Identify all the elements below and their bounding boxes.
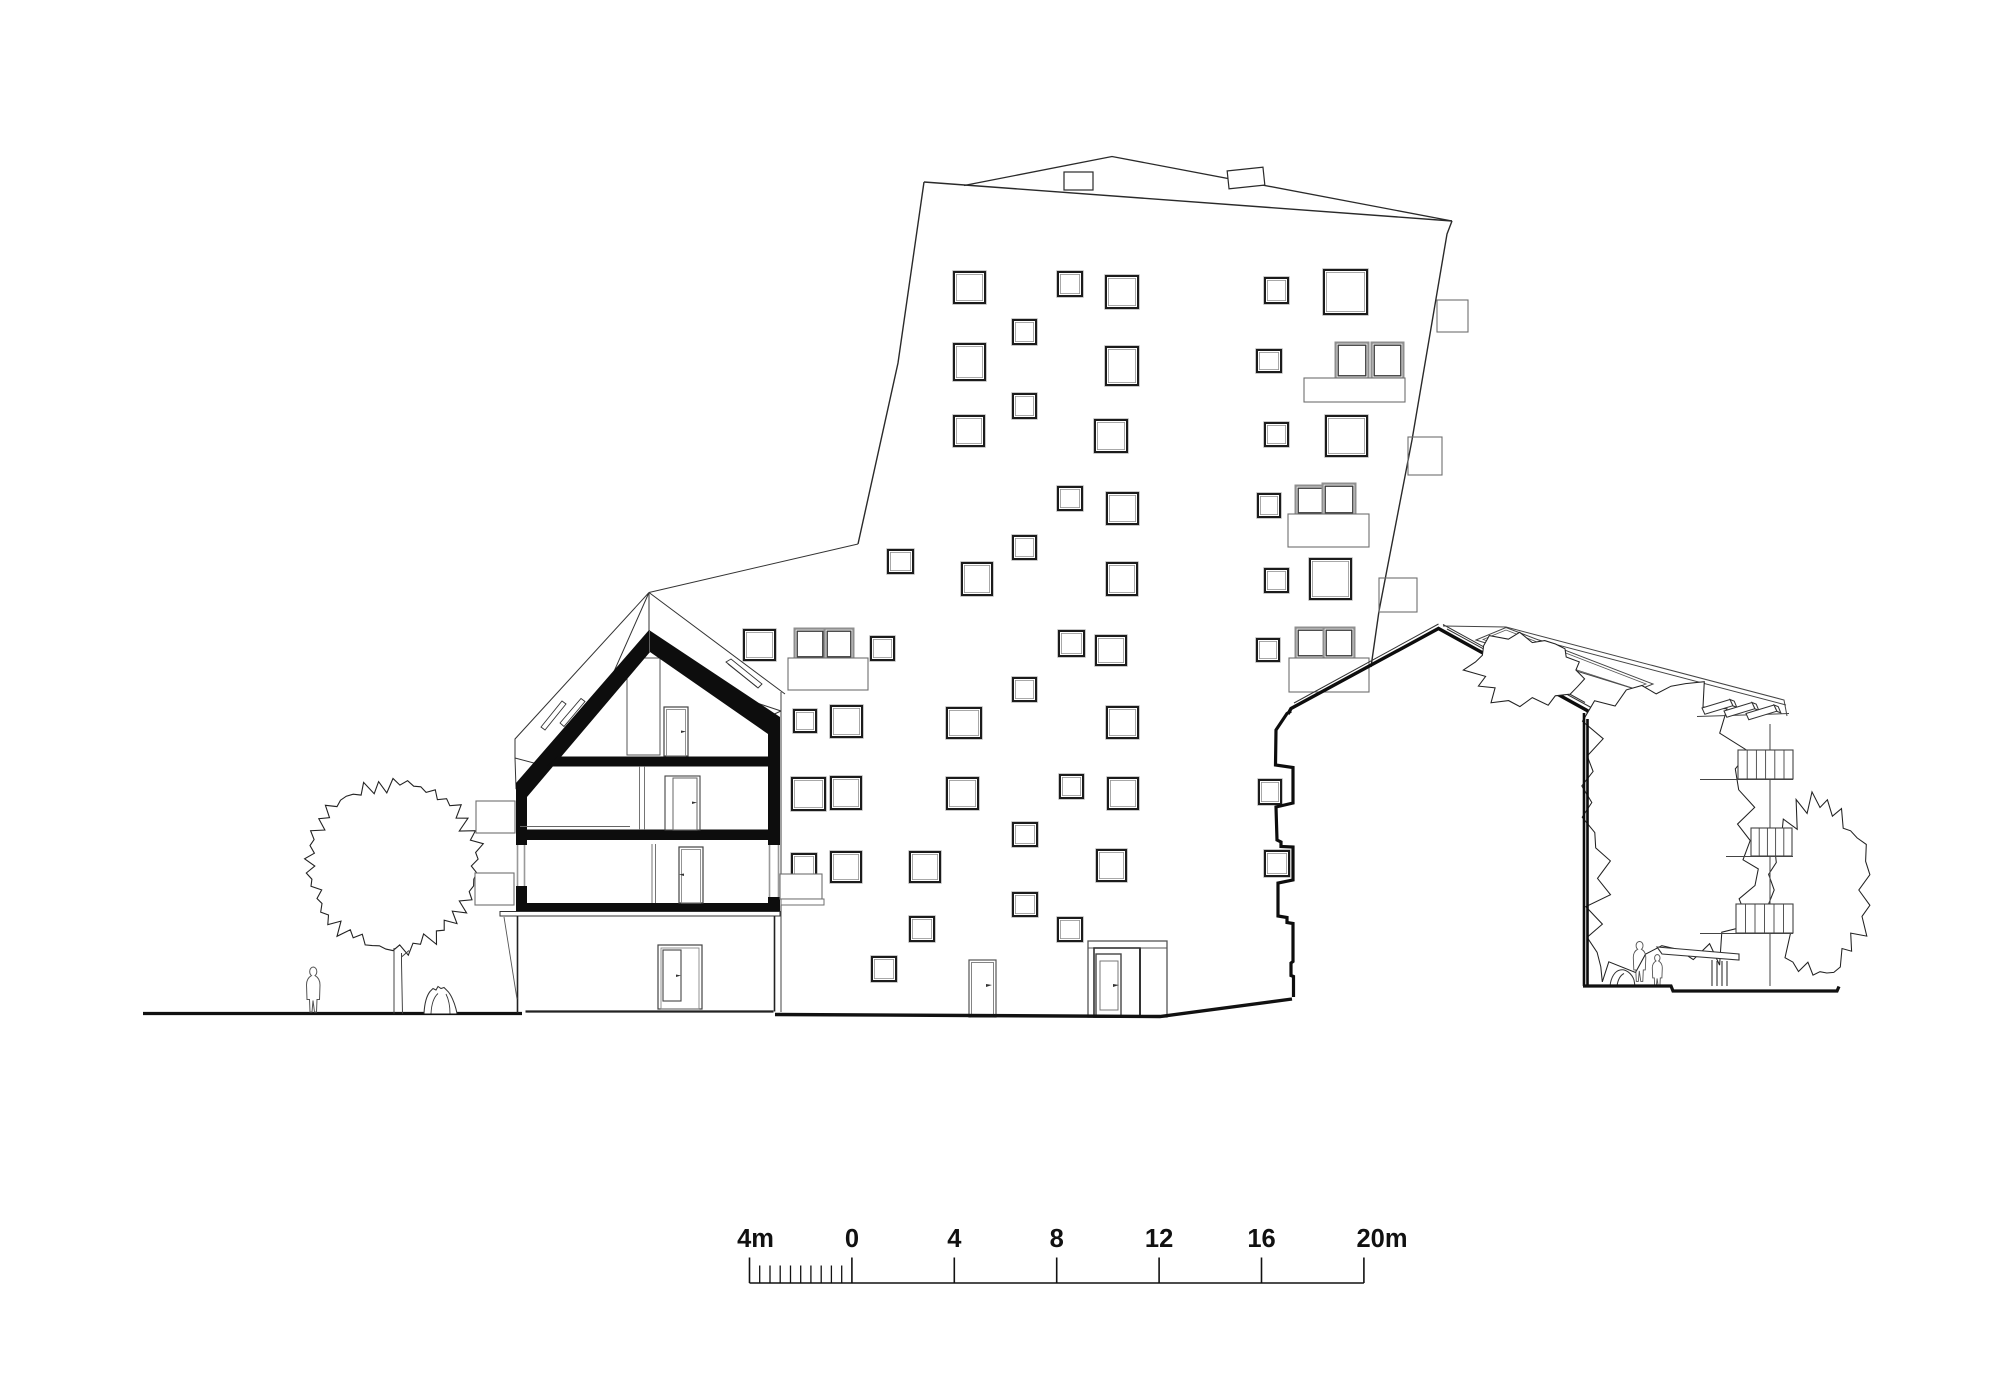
svg-text:16: 16 [1247, 1225, 1275, 1253]
svg-text:4: 4 [947, 1225, 962, 1253]
svg-text:8: 8 [1050, 1225, 1064, 1253]
svg-text:4m: 4m [737, 1225, 774, 1253]
svg-text:0: 0 [845, 1225, 859, 1253]
svg-text:20m: 20m [1356, 1225, 1407, 1253]
svg-text:12: 12 [1145, 1225, 1173, 1253]
